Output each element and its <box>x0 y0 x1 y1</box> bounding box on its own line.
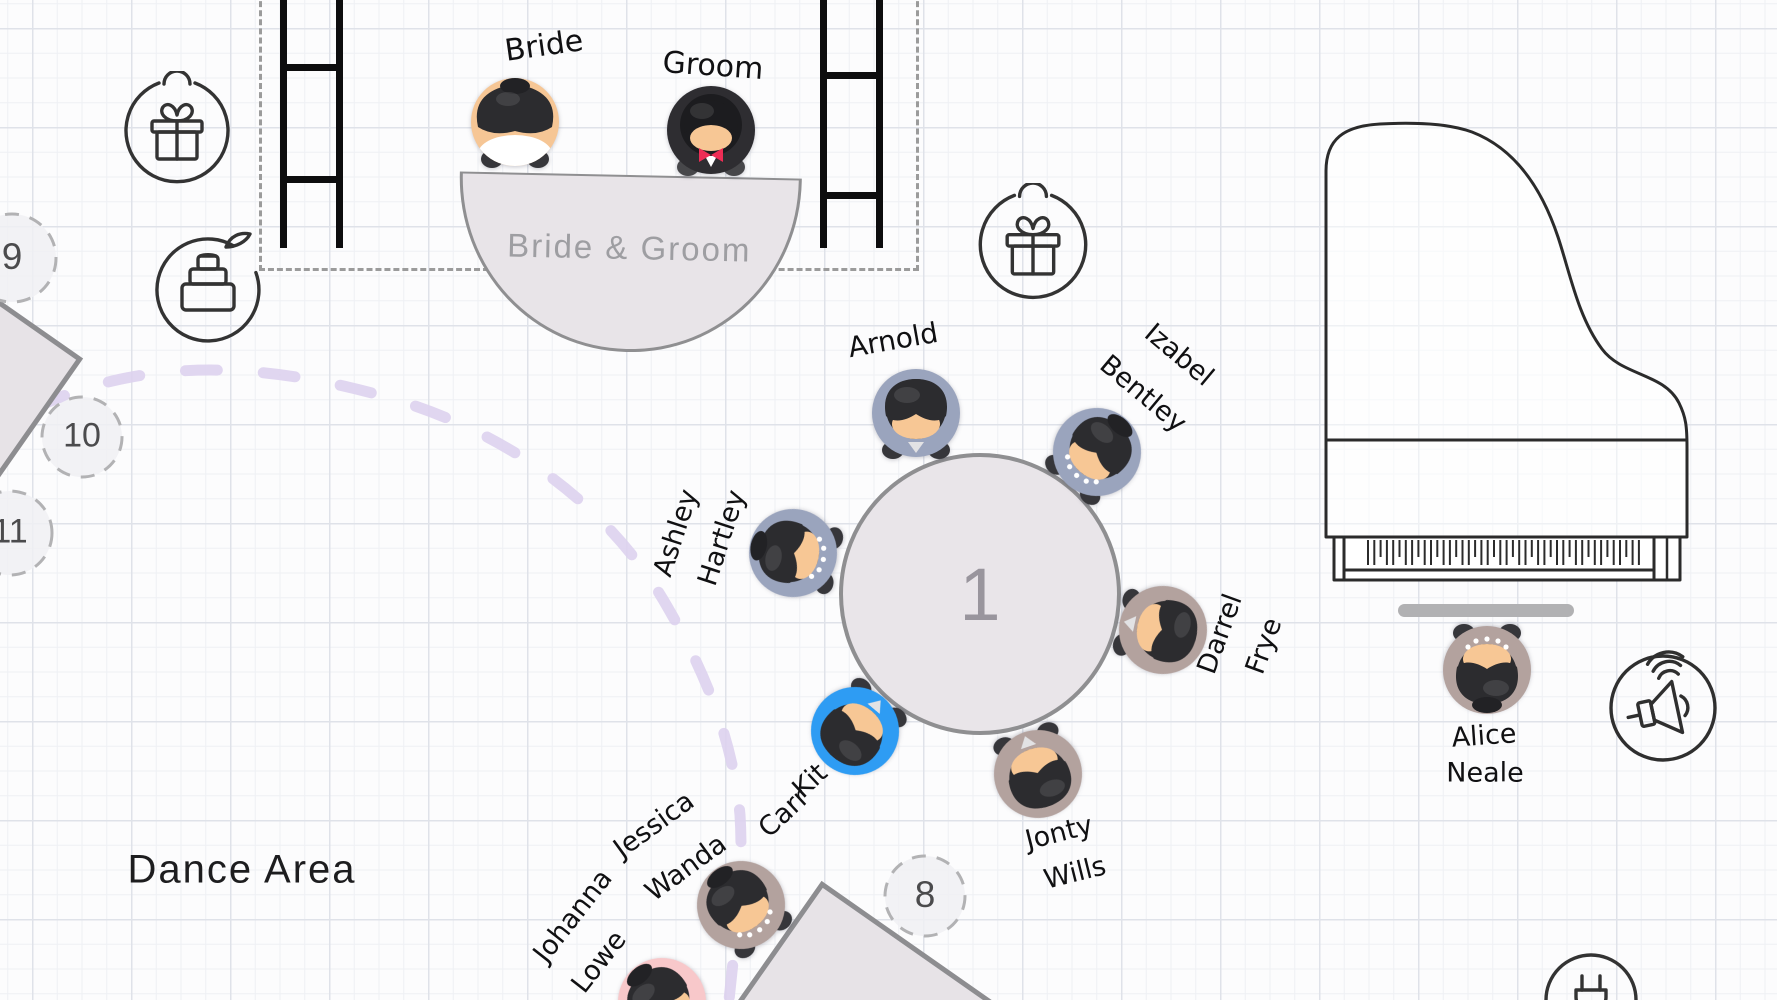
unassigned-seat-10[interactable]: 10 <box>38 393 126 481</box>
guest-figure-art <box>1440 623 1534 717</box>
speaker-icon[interactable] <box>1605 650 1721 766</box>
guest-figure-art <box>869 366 963 460</box>
guest-bride[interactable] <box>468 75 562 169</box>
wedding-cake-icon[interactable] <box>148 228 268 348</box>
power-plug-icon[interactable] <box>1541 950 1641 1000</box>
grand-piano[interactable] <box>1322 119 1694 587</box>
seat-number: 9 <box>2 236 23 278</box>
guest-figure-art <box>468 75 562 169</box>
unassigned-seat-9[interactable]: 9 <box>0 210 60 306</box>
guest-figure-art <box>737 497 848 608</box>
guest-groom[interactable] <box>664 83 758 177</box>
guest-name-label-alice: Neale <box>1446 758 1523 789</box>
seat-number: 11 <box>0 513 28 552</box>
piano-bench[interactable] <box>1398 604 1574 617</box>
guest-alice[interactable] <box>1440 623 1534 717</box>
floor-plan-canvas[interactable]: Bride & Groom 1 9 10 11 8 <box>0 0 1777 1000</box>
seat-number: 10 <box>63 417 101 456</box>
table-number: 1 <box>959 552 1000 637</box>
unassigned-seat-8[interactable]: 8 <box>881 852 969 940</box>
gift-icon[interactable] <box>971 183 1095 307</box>
guest-figure-art <box>664 83 758 177</box>
guest-name-label-alice: Alice <box>1451 718 1518 753</box>
guest-ashley[interactable] <box>737 497 848 608</box>
guest-name-label-groom: Groom <box>661 45 764 87</box>
seat-number: 8 <box>915 874 936 916</box>
unassigned-seat-11[interactable]: 11 <box>0 487 56 579</box>
guest-arnold[interactable] <box>869 366 963 460</box>
dance-area-label[interactable]: Dance Area <box>127 848 356 893</box>
table-label: Bride & Groom <box>507 226 752 269</box>
gift-icon[interactable] <box>117 71 237 191</box>
